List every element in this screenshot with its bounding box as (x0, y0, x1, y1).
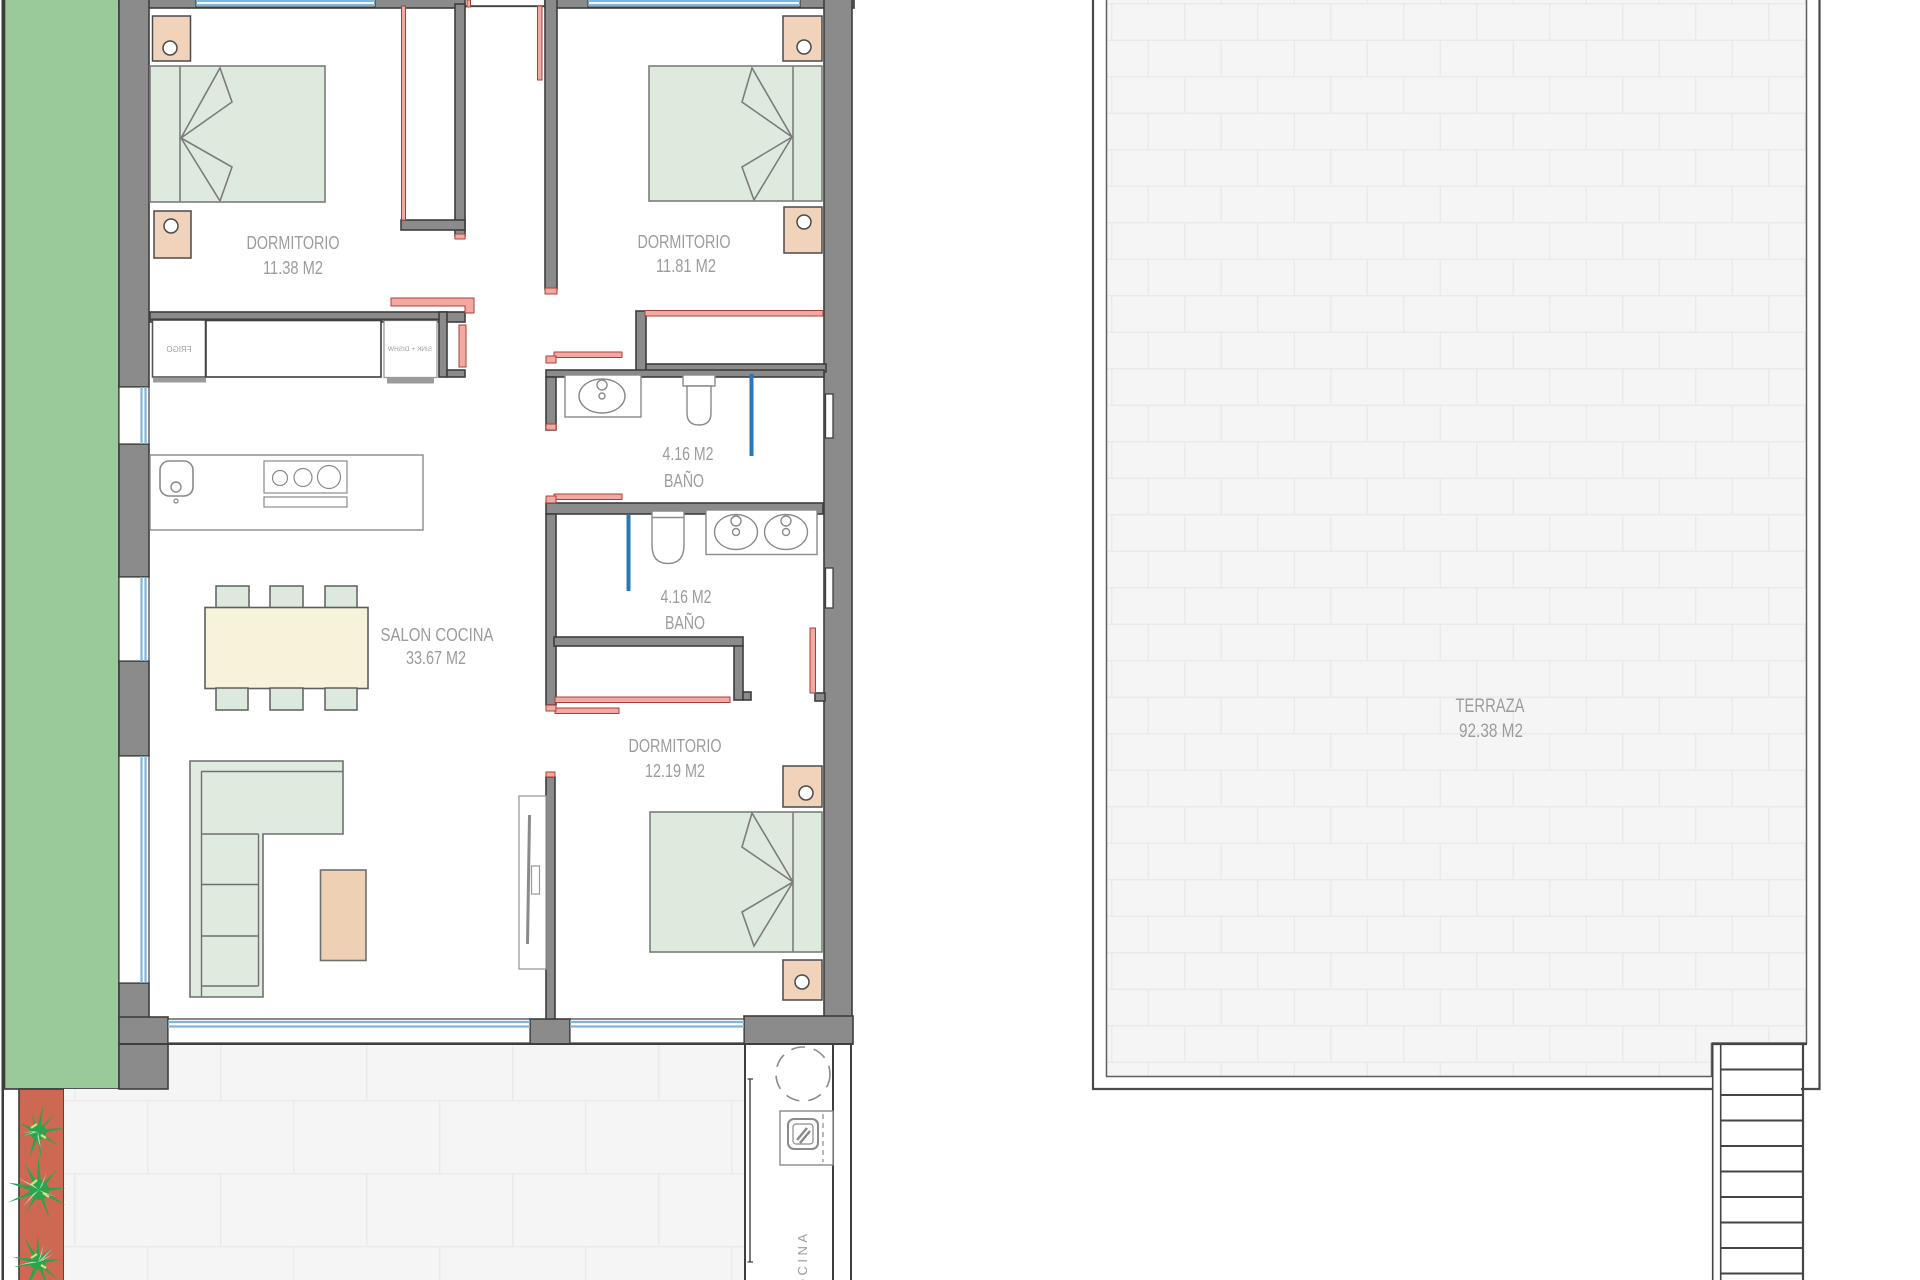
svg-text:92.38 M2: 92.38 M2 (1459, 721, 1523, 742)
svg-text:SALON COCINA: SALON COCINA (381, 625, 494, 645)
svg-text:4.16 M2: 4.16 M2 (663, 444, 714, 464)
svg-text:SINK + DISHW: SINK + DISHW (387, 346, 432, 353)
svg-text:33.67 M2: 33.67 M2 (406, 648, 466, 668)
svg-text:11.81 M2: 11.81 M2 (656, 256, 716, 276)
svg-text:FRIGO: FRIGO (166, 345, 191, 354)
svg-text:DORMITORIO: DORMITORIO (247, 233, 340, 253)
svg-text:COCINA: COCINA (795, 1230, 810, 1280)
svg-text:11.38 M2: 11.38 M2 (263, 258, 323, 278)
svg-text:4.16 M2: 4.16 M2 (661, 587, 712, 607)
svg-text:BAÑO: BAÑO (664, 470, 704, 491)
svg-text:TERRAZA: TERRAZA (1456, 696, 1525, 717)
svg-text:DORMITORIO: DORMITORIO (629, 736, 722, 756)
svg-text:12.19 M2: 12.19 M2 (645, 761, 705, 781)
svg-text:DORMITORIO: DORMITORIO (638, 232, 731, 252)
svg-text:BAÑO: BAÑO (665, 612, 705, 633)
